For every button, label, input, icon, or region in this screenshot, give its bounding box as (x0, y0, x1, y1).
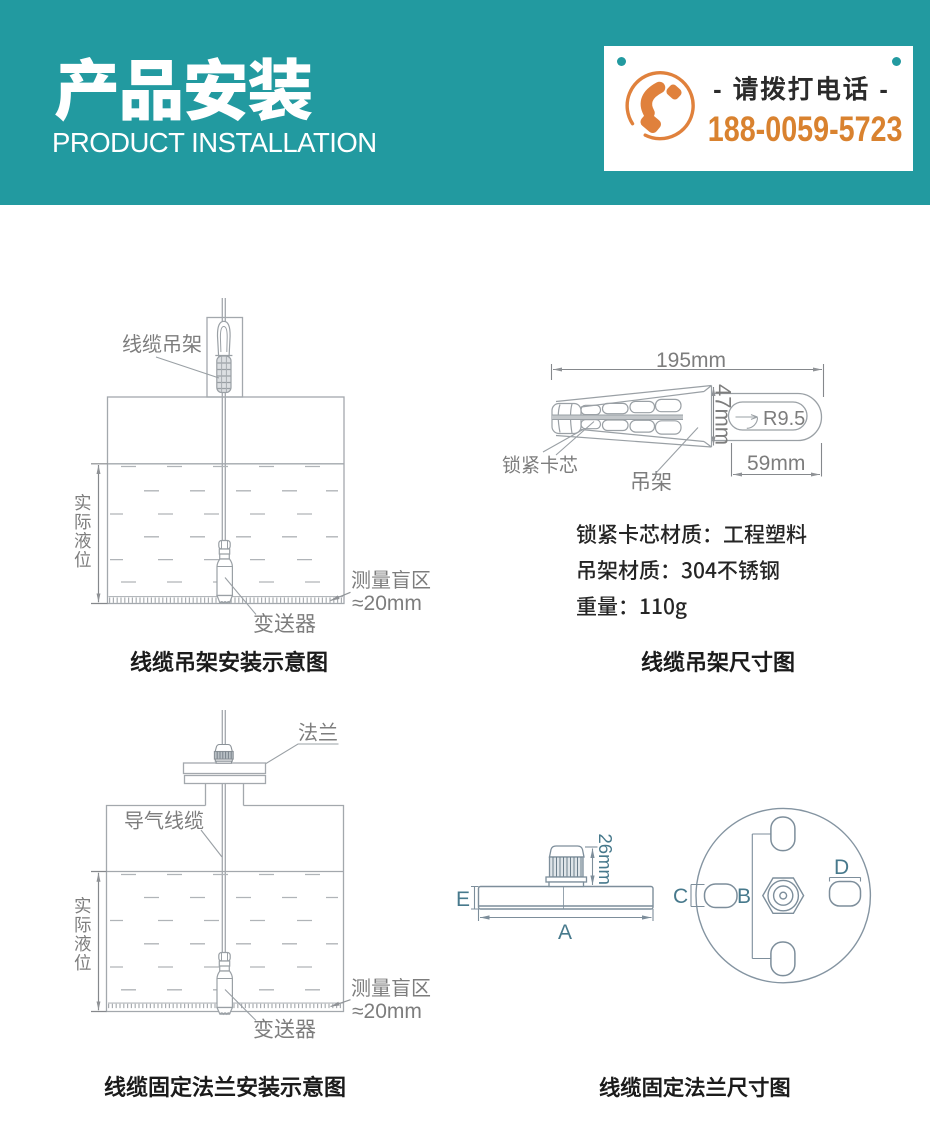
svg-text:实: 实 (74, 896, 92, 916)
svg-text:线缆吊架尺寸图: 线缆吊架尺寸图 (641, 650, 795, 675)
svg-text:E: E (456, 888, 470, 911)
svg-text:际: 际 (74, 915, 92, 935)
svg-text:线缆固定法兰安装示意图: 线缆固定法兰安装示意图 (104, 1075, 346, 1100)
svg-text:线缆吊架安装示意图: 线缆吊架安装示意图 (130, 650, 328, 675)
svg-text:≈20mm: ≈20mm (352, 1000, 422, 1023)
svg-text:法兰: 法兰 (298, 722, 338, 745)
svg-text:测量盲区: 测量盲区 (351, 977, 431, 1000)
svg-text:A: A (558, 921, 572, 944)
svg-text:实: 实 (74, 493, 92, 513)
svg-text:位: 位 (74, 550, 92, 570)
svg-text:59mm: 59mm (747, 452, 805, 475)
svg-text:吊架材质：304不锈钢: 吊架材质：304不锈钢 (576, 555, 780, 585)
svg-text:锁紧卡芯: 锁紧卡芯 (502, 455, 578, 477)
svg-text:B: B (737, 885, 751, 908)
svg-text:位: 位 (74, 953, 92, 973)
svg-text:C: C (673, 885, 688, 908)
svg-text:锁紧卡芯材质：工程塑料: 锁紧卡芯材质：工程塑料 (576, 519, 807, 549)
svg-text:液: 液 (74, 934, 92, 954)
svg-text:变送器: 变送器 (253, 1019, 316, 1042)
svg-text:195mm: 195mm (656, 349, 726, 372)
svg-text:变送器: 变送器 (253, 613, 316, 636)
svg-text:线缆吊架: 线缆吊架 (122, 333, 202, 356)
svg-text:26mm: 26mm (595, 834, 616, 885)
svg-text:测量盲区: 测量盲区 (351, 569, 431, 592)
svg-text:吊架: 吊架 (630, 471, 672, 494)
svg-text:R9.5: R9.5 (763, 408, 805, 430)
svg-text:D: D (834, 856, 849, 879)
svg-text:47mm: 47mm (711, 384, 736, 445)
svg-text:际: 际 (74, 512, 92, 532)
svg-text:线缆固定法兰尺寸图: 线缆固定法兰尺寸图 (599, 1075, 791, 1100)
svg-text:重量：110g: 重量：110g (576, 591, 687, 621)
svg-text:液: 液 (74, 531, 92, 551)
svg-text:导气线缆: 导气线缆 (124, 810, 204, 833)
svg-text:≈20mm: ≈20mm (352, 592, 422, 615)
